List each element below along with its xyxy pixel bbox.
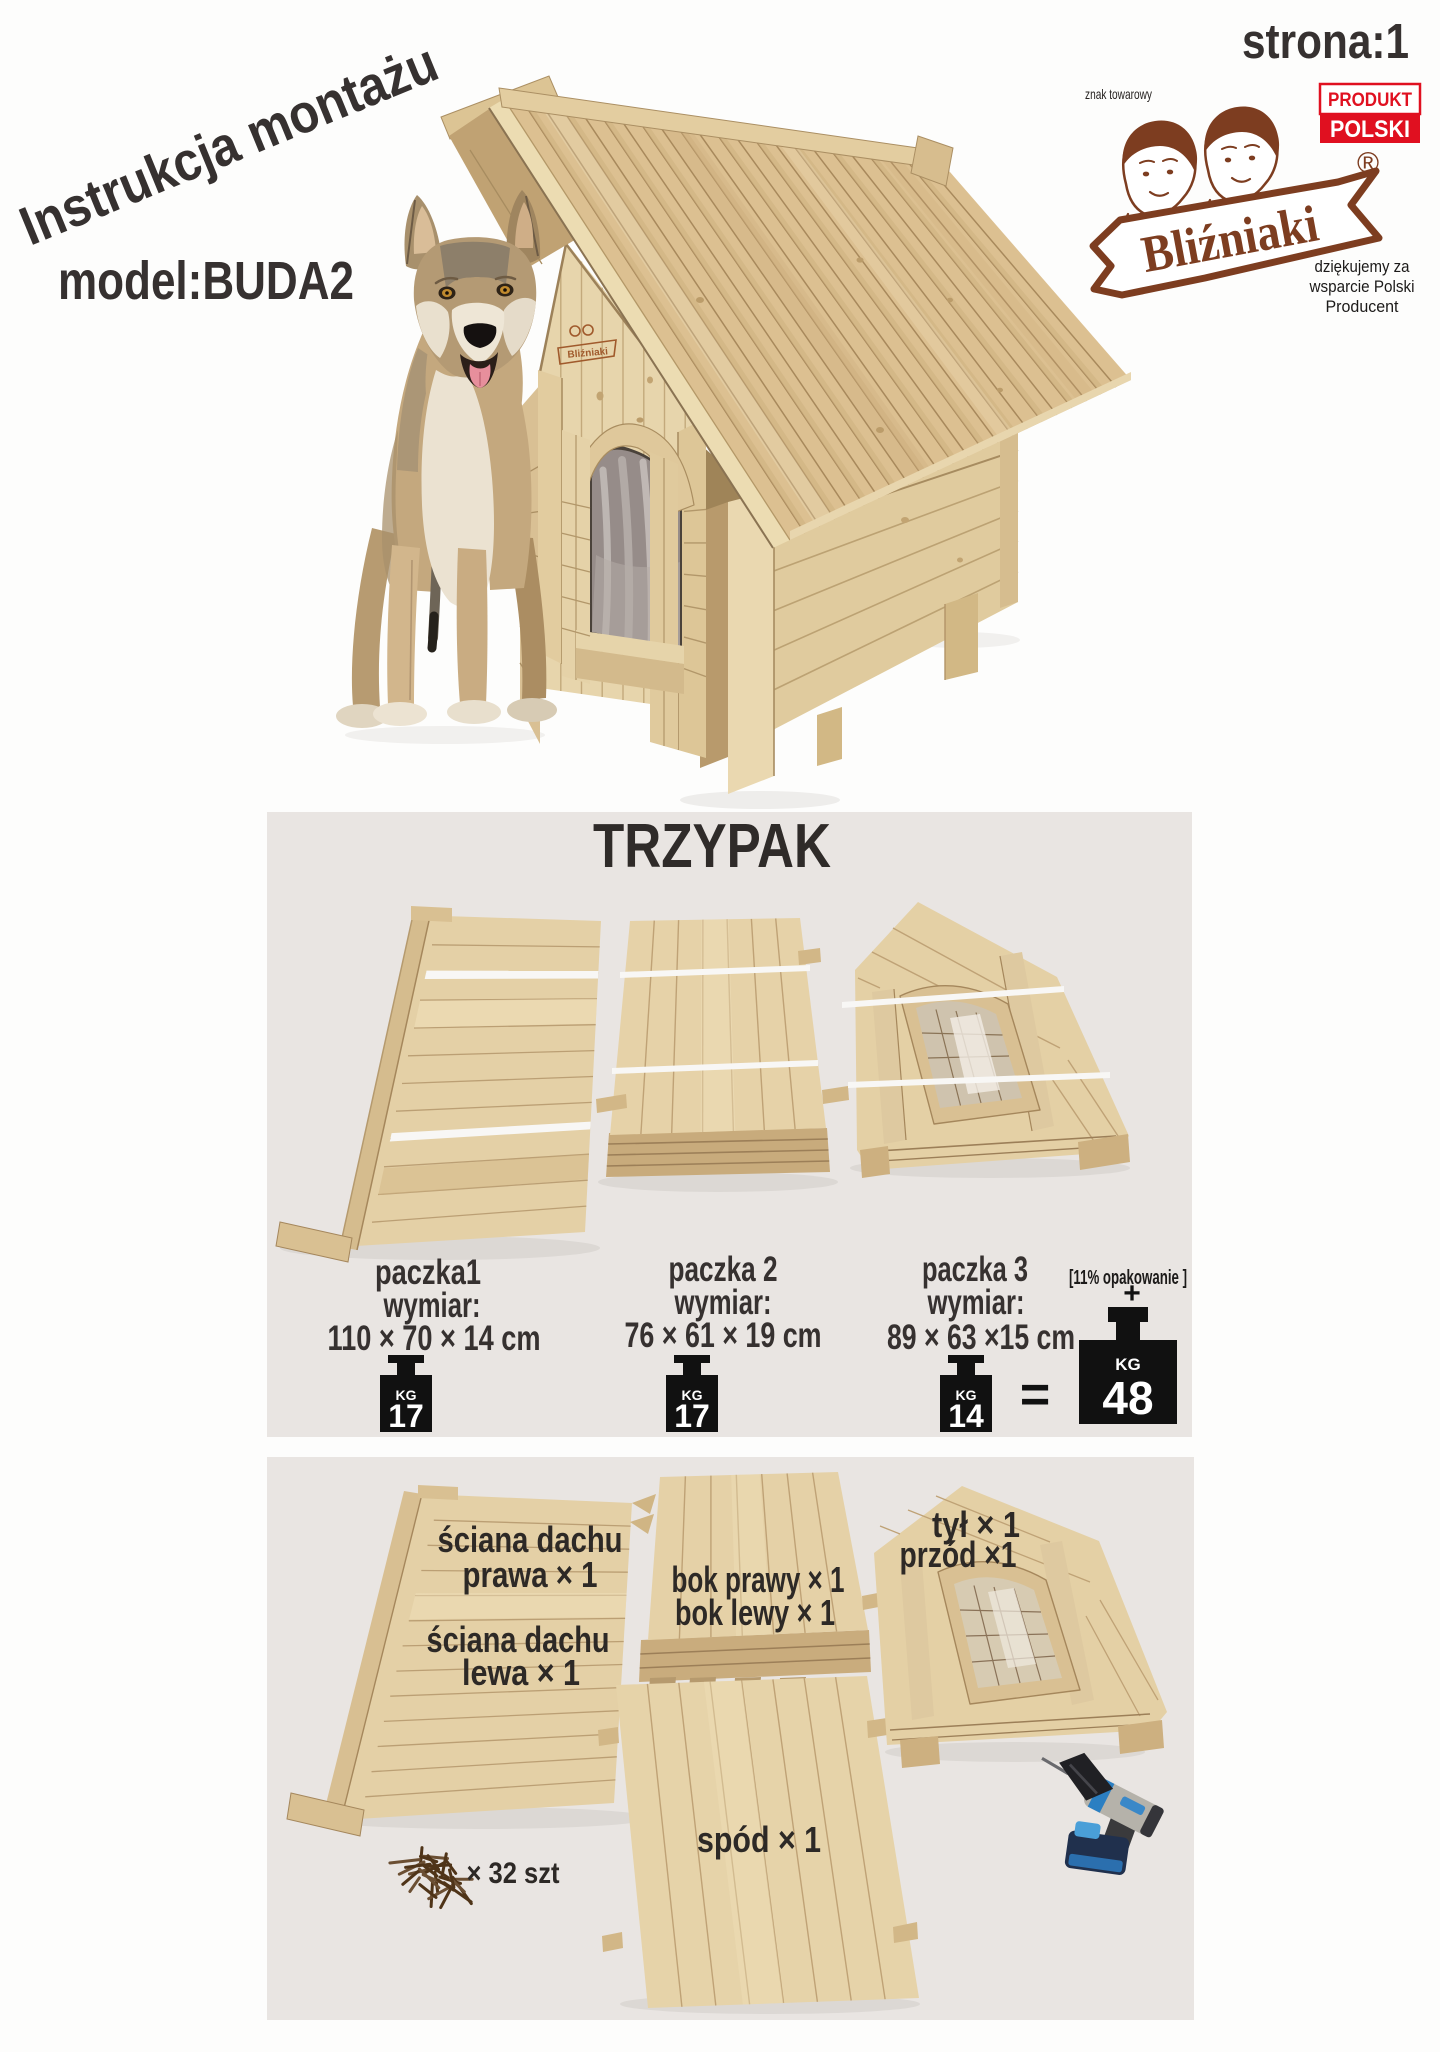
svg-text:PRODUKT: PRODUKT — [1328, 90, 1412, 111]
svg-text:76 × 61 × 19 cm: 76 × 61 × 19 cm — [625, 1316, 822, 1355]
svg-text:89 × 63 ×15 cm: 89 × 63 ×15 cm — [887, 1318, 1075, 1357]
svg-text:+: + — [1123, 1277, 1141, 1310]
svg-text:dziękujemy za: dziękujemy za — [1315, 257, 1410, 276]
svg-text:POLSKI: POLSKI — [1330, 116, 1410, 143]
svg-text:model:BUDA2: model:BUDA2 — [58, 251, 354, 311]
svg-text:przód ×1: przód ×1 — [900, 1534, 1017, 1575]
svg-text:®: ® — [1357, 147, 1379, 180]
svg-text:lewa × 1: lewa × 1 — [462, 1652, 580, 1693]
svg-text:48: 48 — [1102, 1372, 1153, 1424]
svg-text:Producent: Producent — [1326, 297, 1399, 316]
svg-text:wsparcie Polski: wsparcie Polski — [1309, 277, 1415, 296]
svg-text:110 × 70 × 14 cm: 110 × 70 × 14 cm — [328, 1319, 541, 1358]
svg-text:TRZYPAK: TRZYPAK — [593, 812, 831, 881]
svg-text:14: 14 — [948, 1398, 984, 1434]
svg-text:Instrukcja montażu: Instrukcja montażu — [11, 31, 446, 257]
svg-text:× 32 szt: × 32 szt — [467, 1857, 560, 1890]
svg-text:strona:1: strona:1 — [1242, 15, 1409, 69]
svg-text:wymiar:: wymiar: — [927, 1283, 1025, 1322]
svg-text:prawa × 1: prawa × 1 — [463, 1554, 598, 1595]
svg-text:bok lewy × 1: bok lewy × 1 — [675, 1592, 835, 1633]
svg-text:znak towarowy: znak towarowy — [1085, 86, 1152, 102]
svg-text:17: 17 — [388, 1398, 424, 1434]
svg-text:17: 17 — [674, 1398, 710, 1434]
svg-text:=: = — [1020, 1366, 1050, 1424]
svg-text:spód × 1: spód × 1 — [697, 1819, 821, 1860]
